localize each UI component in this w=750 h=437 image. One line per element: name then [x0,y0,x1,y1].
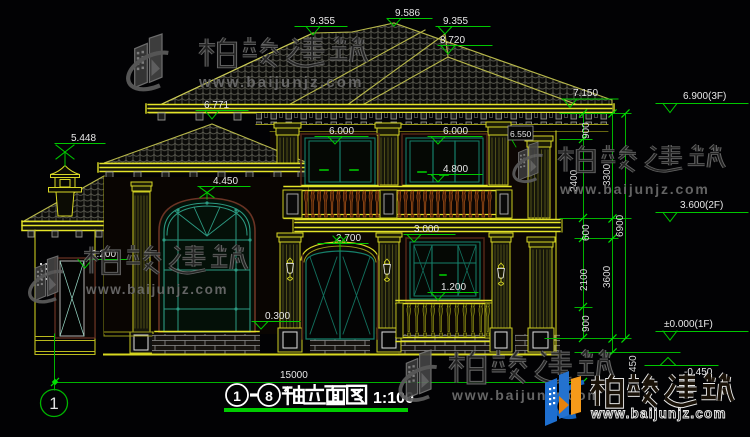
svg-text:6900: 6900 [615,214,626,237]
svg-text:4.800: 4.800 [443,164,468,175]
svg-text:15000: 15000 [280,370,308,381]
svg-text:www.baijunjz.com: www.baijunjz.com [590,406,727,421]
svg-text:900: 900 [581,315,592,332]
svg-text:6.900(3F): 6.900(3F) [683,91,726,102]
svg-text:0.300: 0.300 [265,311,290,322]
svg-text:1.200: 1.200 [441,282,466,293]
svg-text:8: 8 [265,388,273,404]
svg-text:600: 600 [581,224,592,241]
svg-text:1: 1 [233,388,241,404]
svg-text:9.355: 9.355 [443,16,468,27]
svg-text:5.448: 5.448 [71,133,96,144]
svg-text:3.000: 3.000 [414,224,439,235]
svg-text:7.150: 7.150 [573,88,598,99]
svg-text:8.720: 8.720 [440,35,465,46]
svg-text:900: 900 [581,122,592,139]
svg-text:www.baijunjz.com: www.baijunjz.com [85,282,228,297]
svg-text:1: 1 [49,394,58,413]
svg-text:3.600(2F): 3.600(2F) [680,200,723,211]
svg-text:www.baijunjz.com: www.baijunjz.com [198,74,364,91]
svg-text:9.586: 9.586 [395,8,420,19]
svg-text:4.450: 4.450 [213,176,238,187]
svg-text:2.700: 2.700 [336,233,361,244]
svg-text:6.000: 6.000 [443,126,468,137]
svg-text:6.550: 6.550 [510,129,532,139]
svg-text:450: 450 [628,355,639,372]
svg-text:±0.000(1F): ±0.000(1F) [664,319,713,330]
svg-text:9.355: 9.355 [310,16,335,27]
svg-text:www.baijunjz.com: www.baijunjz.com [559,181,710,197]
svg-text:2100: 2100 [579,268,590,291]
svg-text:6.771: 6.771 [204,100,229,111]
svg-text:6.000: 6.000 [329,126,354,137]
svg-text:3600: 3600 [602,265,613,288]
